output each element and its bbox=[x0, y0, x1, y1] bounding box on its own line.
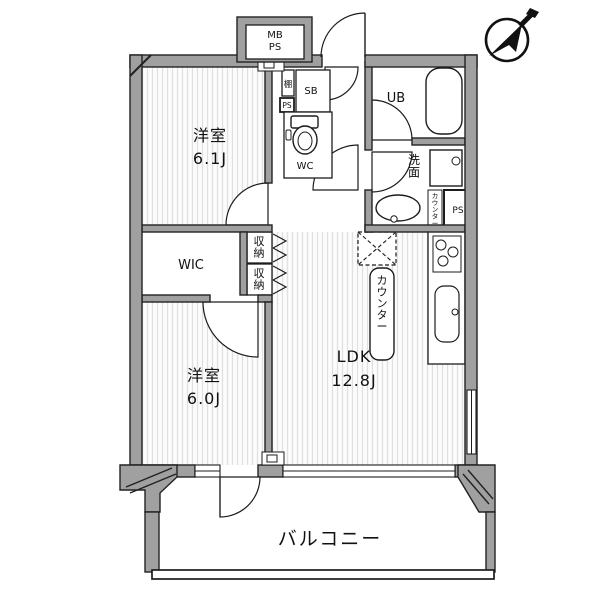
bedroom2-size-label: 6.0J bbox=[187, 389, 221, 408]
meter-box-label: MB bbox=[267, 30, 283, 41]
bathtub-icon bbox=[426, 68, 462, 134]
ps-kitchen-label: PS bbox=[452, 206, 463, 216]
balcony-door bbox=[220, 477, 260, 517]
bedroom2-name-label: 洋室 bbox=[187, 366, 221, 385]
floor-plan-svg: MB PS 洋室 6.1J 洋室 6.0J LDK 12.8J bbox=[0, 0, 600, 600]
counter-label: カウンター bbox=[377, 274, 388, 333]
balcony-right-rail bbox=[486, 512, 495, 572]
kitchen-faucet-icon bbox=[452, 309, 458, 315]
balcony-label: バルコニー bbox=[278, 528, 383, 550]
north-compass-icon bbox=[486, 8, 539, 61]
refrigerator-space bbox=[358, 232, 396, 265]
counter-small-label: カウンター bbox=[432, 192, 439, 227]
wic-label: WIC bbox=[178, 258, 204, 273]
washing-machine-tap-icon bbox=[452, 157, 460, 165]
basin-drain-icon bbox=[391, 216, 397, 222]
ps-hall-label: PS bbox=[282, 101, 292, 110]
kitchen-fixtures bbox=[433, 236, 461, 342]
entrance-door bbox=[321, 13, 365, 57]
washing-machine-icon bbox=[430, 150, 462, 186]
bedroom1-name-label: 洋室 bbox=[193, 126, 227, 145]
balcony-railing bbox=[152, 570, 494, 579]
storage-a-label: 収納 bbox=[254, 235, 265, 260]
storage-b-label: 収納 bbox=[254, 267, 265, 292]
balcony-right-structure bbox=[458, 465, 495, 512]
bedroom1-size-label: 6.1J bbox=[193, 149, 227, 168]
ub-label: UB bbox=[387, 91, 405, 106]
shelf-label: 棚 bbox=[284, 79, 293, 90]
floor-plan-page: MB PS 洋室 6.1J 洋室 6.0J LDK 12.8J bbox=[0, 0, 600, 600]
washroom-label: 洗面 bbox=[408, 153, 420, 180]
balcony-left-rail bbox=[145, 512, 159, 572]
ldk-name-label: LDK bbox=[337, 347, 372, 366]
balcony-left-structure bbox=[120, 465, 177, 512]
meter-box-unit: MB PS bbox=[237, 17, 312, 62]
wc-label: WC bbox=[297, 161, 314, 172]
ldk-size-label: 12.8J bbox=[331, 371, 376, 390]
sb-label: SB bbox=[304, 86, 317, 97]
meter-box-ps-label: PS bbox=[269, 42, 281, 53]
basin-sink-icon bbox=[376, 195, 420, 221]
balcony bbox=[120, 465, 495, 579]
